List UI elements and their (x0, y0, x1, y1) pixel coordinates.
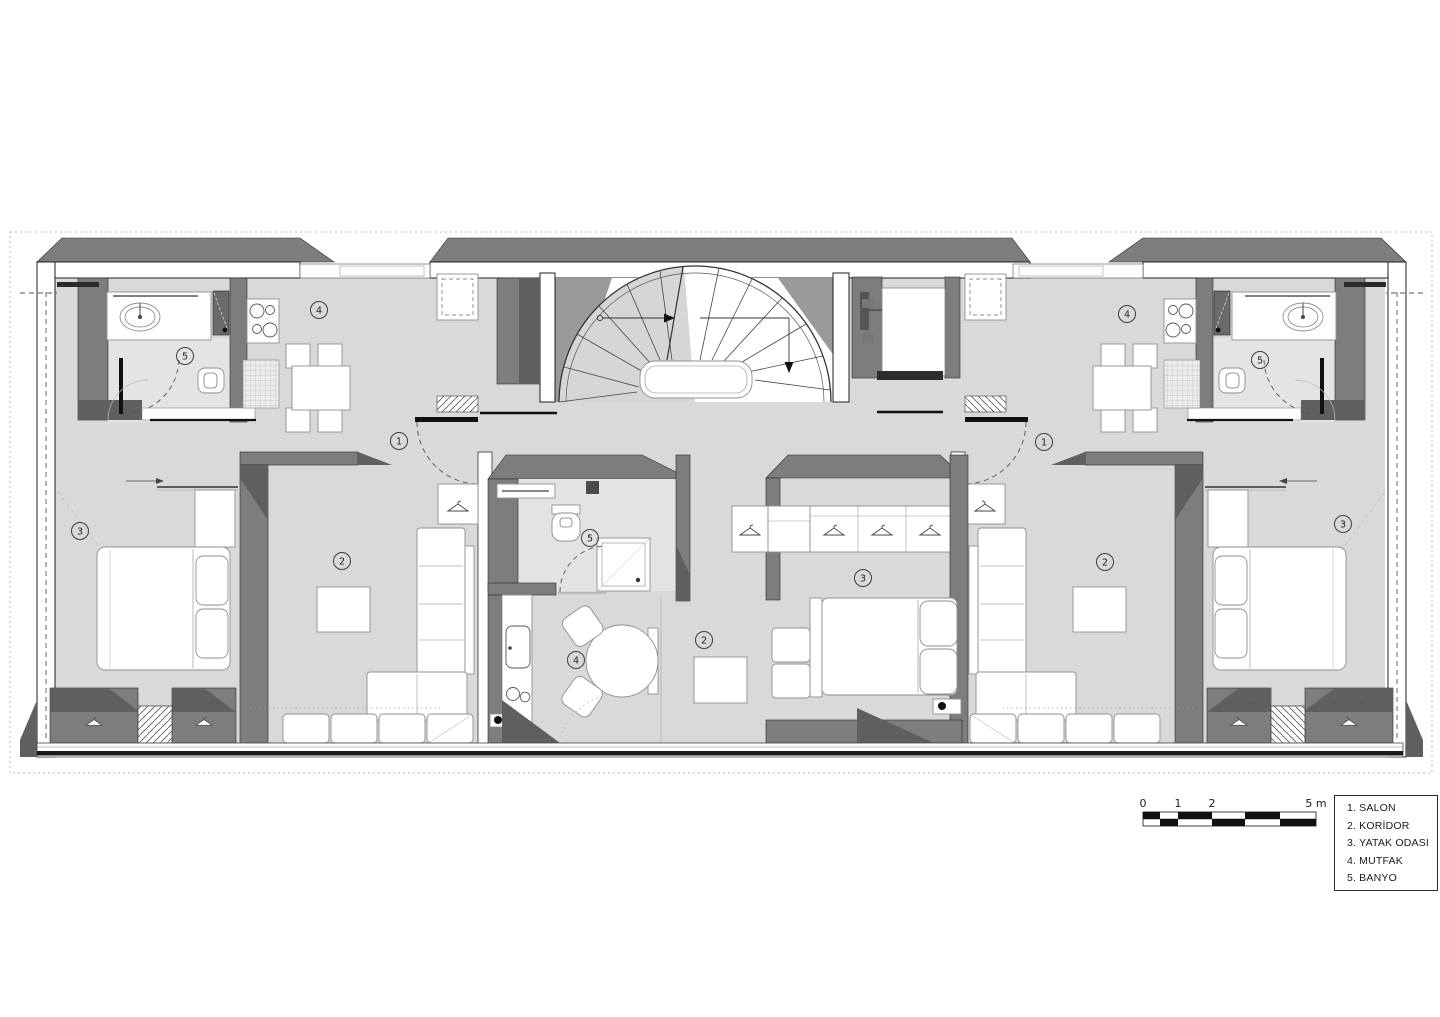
middle-bathroom (488, 455, 690, 601)
room-number-text: 5 (1257, 355, 1263, 366)
bottom-facade (37, 743, 1403, 757)
legend-item: 3.YATAK ODASI (1347, 837, 1433, 849)
elevator-car (882, 288, 945, 376)
floor-plan-sheet: 11222333444555 0 1 2 5 m 1.SALON 2.KORİD… (0, 0, 1440, 1017)
stair-landing (640, 361, 752, 398)
room-number-text: 5 (182, 351, 188, 362)
room-number-text: 2 (339, 556, 345, 567)
room-number-text: 2 (701, 635, 707, 646)
room-number-text: 3 (1340, 519, 1346, 530)
pillow (920, 649, 957, 694)
scale-label: 0 (1140, 797, 1147, 810)
room-number-text: 4 (1124, 309, 1130, 320)
scale-label: 2 (1209, 797, 1216, 810)
pillow (920, 601, 957, 646)
room-number-text: 1 (1041, 437, 1047, 448)
legend-item: 1.SALON (1347, 802, 1433, 814)
room-number-text: 1 (396, 436, 402, 447)
room-number-text: 2 (1102, 557, 1108, 568)
legend-item: 5.BANYO (1347, 872, 1433, 884)
room-number-text: 4 (316, 305, 322, 316)
floor-plan-svg: 11222333444555 0 1 2 5 m (0, 0, 1440, 1017)
legend: 1.SALON 2.KORİDOR 3.YATAK ODASI 4.MUTFAK… (1334, 795, 1438, 891)
legend-item: 4.MUTFAK (1347, 855, 1433, 867)
room-number-text: 3 (860, 573, 866, 584)
scale-label: 1 (1175, 797, 1182, 810)
room-number-text: 4 (573, 655, 579, 666)
hall-table (694, 657, 747, 703)
room-number-text: 3 (77, 526, 83, 537)
scale-bar: 0 1 2 5 m (1140, 797, 1327, 826)
room-number-text: 5 (587, 533, 593, 544)
scale-label: 5 m (1305, 797, 1326, 810)
legend-item: 2.KORİDOR (1347, 820, 1433, 832)
